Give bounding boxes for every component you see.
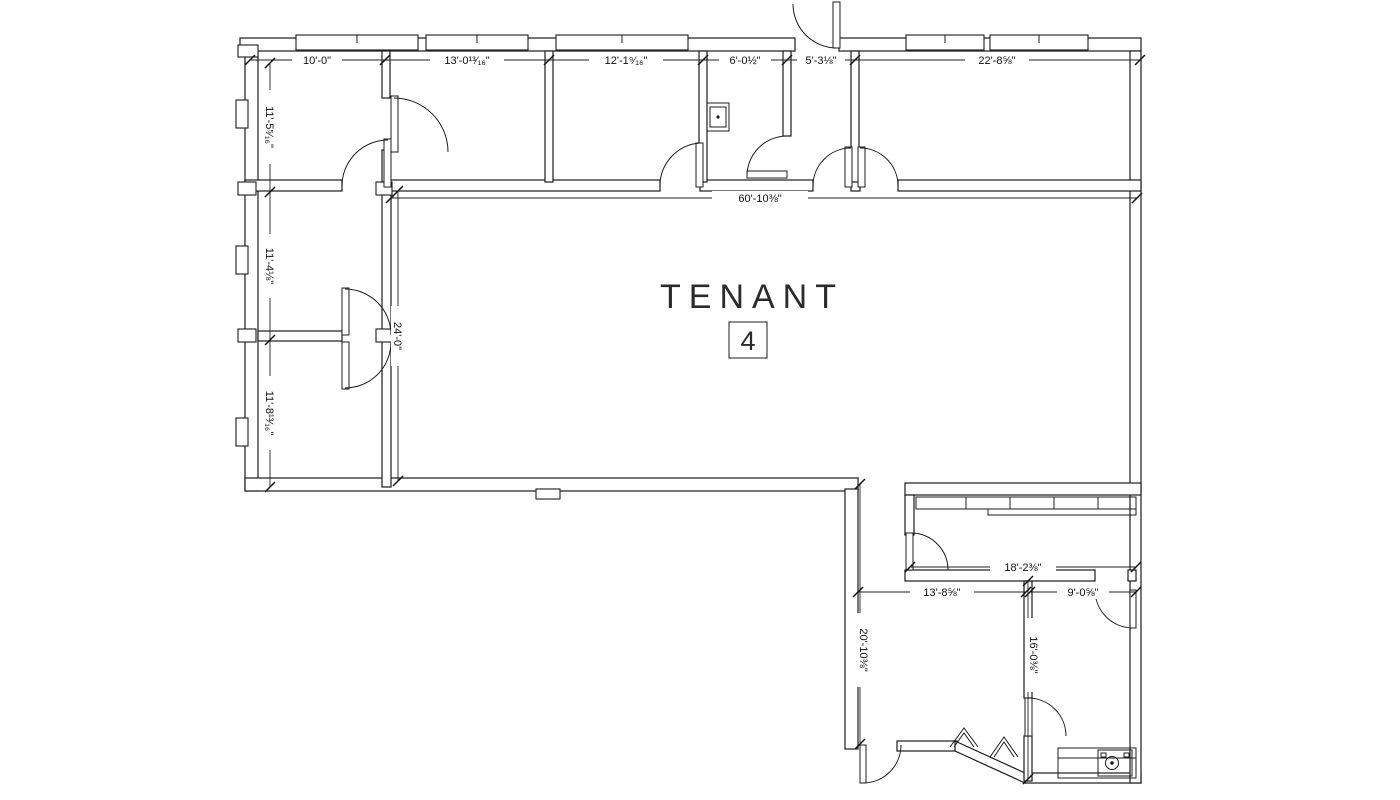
doors	[342, 2, 1136, 783]
floor-plan-page: 10'-0" 13'-0¹³⁄₁₆" 12'-1⁹⁄₁₆" 6'-0½" 5'-…	[0, 0, 1400, 800]
dim-top-4: 6'-0½"	[729, 55, 760, 67]
dim-top-1: 10'-0"	[303, 55, 331, 67]
dim-lower-right: 9'-0⅝"	[1067, 587, 1098, 599]
entry-door-swing	[793, 4, 837, 48]
tenant-title: TENANT 4	[660, 278, 844, 358]
dim-corridor-depth: 20'-10⅜"	[857, 628, 869, 671]
tenant-unit-number: 4	[740, 326, 755, 356]
dim-top-6: 22'-8⅝"	[978, 55, 1015, 67]
casework-shelving	[916, 497, 1136, 515]
interior-walls	[245, 51, 1141, 781]
dim-lower-room-top: 18'-2⅜"	[1004, 562, 1041, 574]
dim-lower-room-depth: 16'-0⅜"	[1027, 636, 1039, 673]
dim-open-depth: 24'-0"	[391, 322, 403, 350]
dim-top-5: 5'-3⅛"	[805, 55, 836, 67]
floor-plan-drawing: 10'-0" 13'-0¹³⁄₁₆" 12'-1⁹⁄₁₆" 6'-0½" 5'-…	[0, 0, 1400, 800]
dim-lower-left: 13'-8⅝"	[923, 587, 960, 599]
exterior-walls	[240, 38, 1141, 783]
dim-left-1: 11'-5⁵⁄₁₆"	[263, 106, 275, 148]
dim-top-2: 13'-0¹³⁄₁₆"	[444, 55, 489, 67]
dim-open-width: 60'-10⅜"	[738, 193, 781, 205]
dimension-ticks	[245, 55, 1145, 784]
dimensions: 10'-0" 13'-0¹³⁄₁₆" 12'-1⁹⁄₁₆" 6'-0½" 5'-…	[245, 53, 1145, 784]
electrical-panel	[707, 103, 729, 131]
stove-icon	[1098, 750, 1132, 776]
entry-door-leaf	[833, 2, 840, 48]
dim-top-3: 12'-1⁹⁄₁₆"	[605, 55, 648, 67]
dim-left-3: 11'-8¹³⁄₁₆"	[263, 391, 275, 436]
tenant-label: TENANT	[660, 278, 844, 316]
chamfer-wall	[955, 741, 1025, 783]
dim-left-2: 11'-4⅛"	[263, 248, 275, 284]
